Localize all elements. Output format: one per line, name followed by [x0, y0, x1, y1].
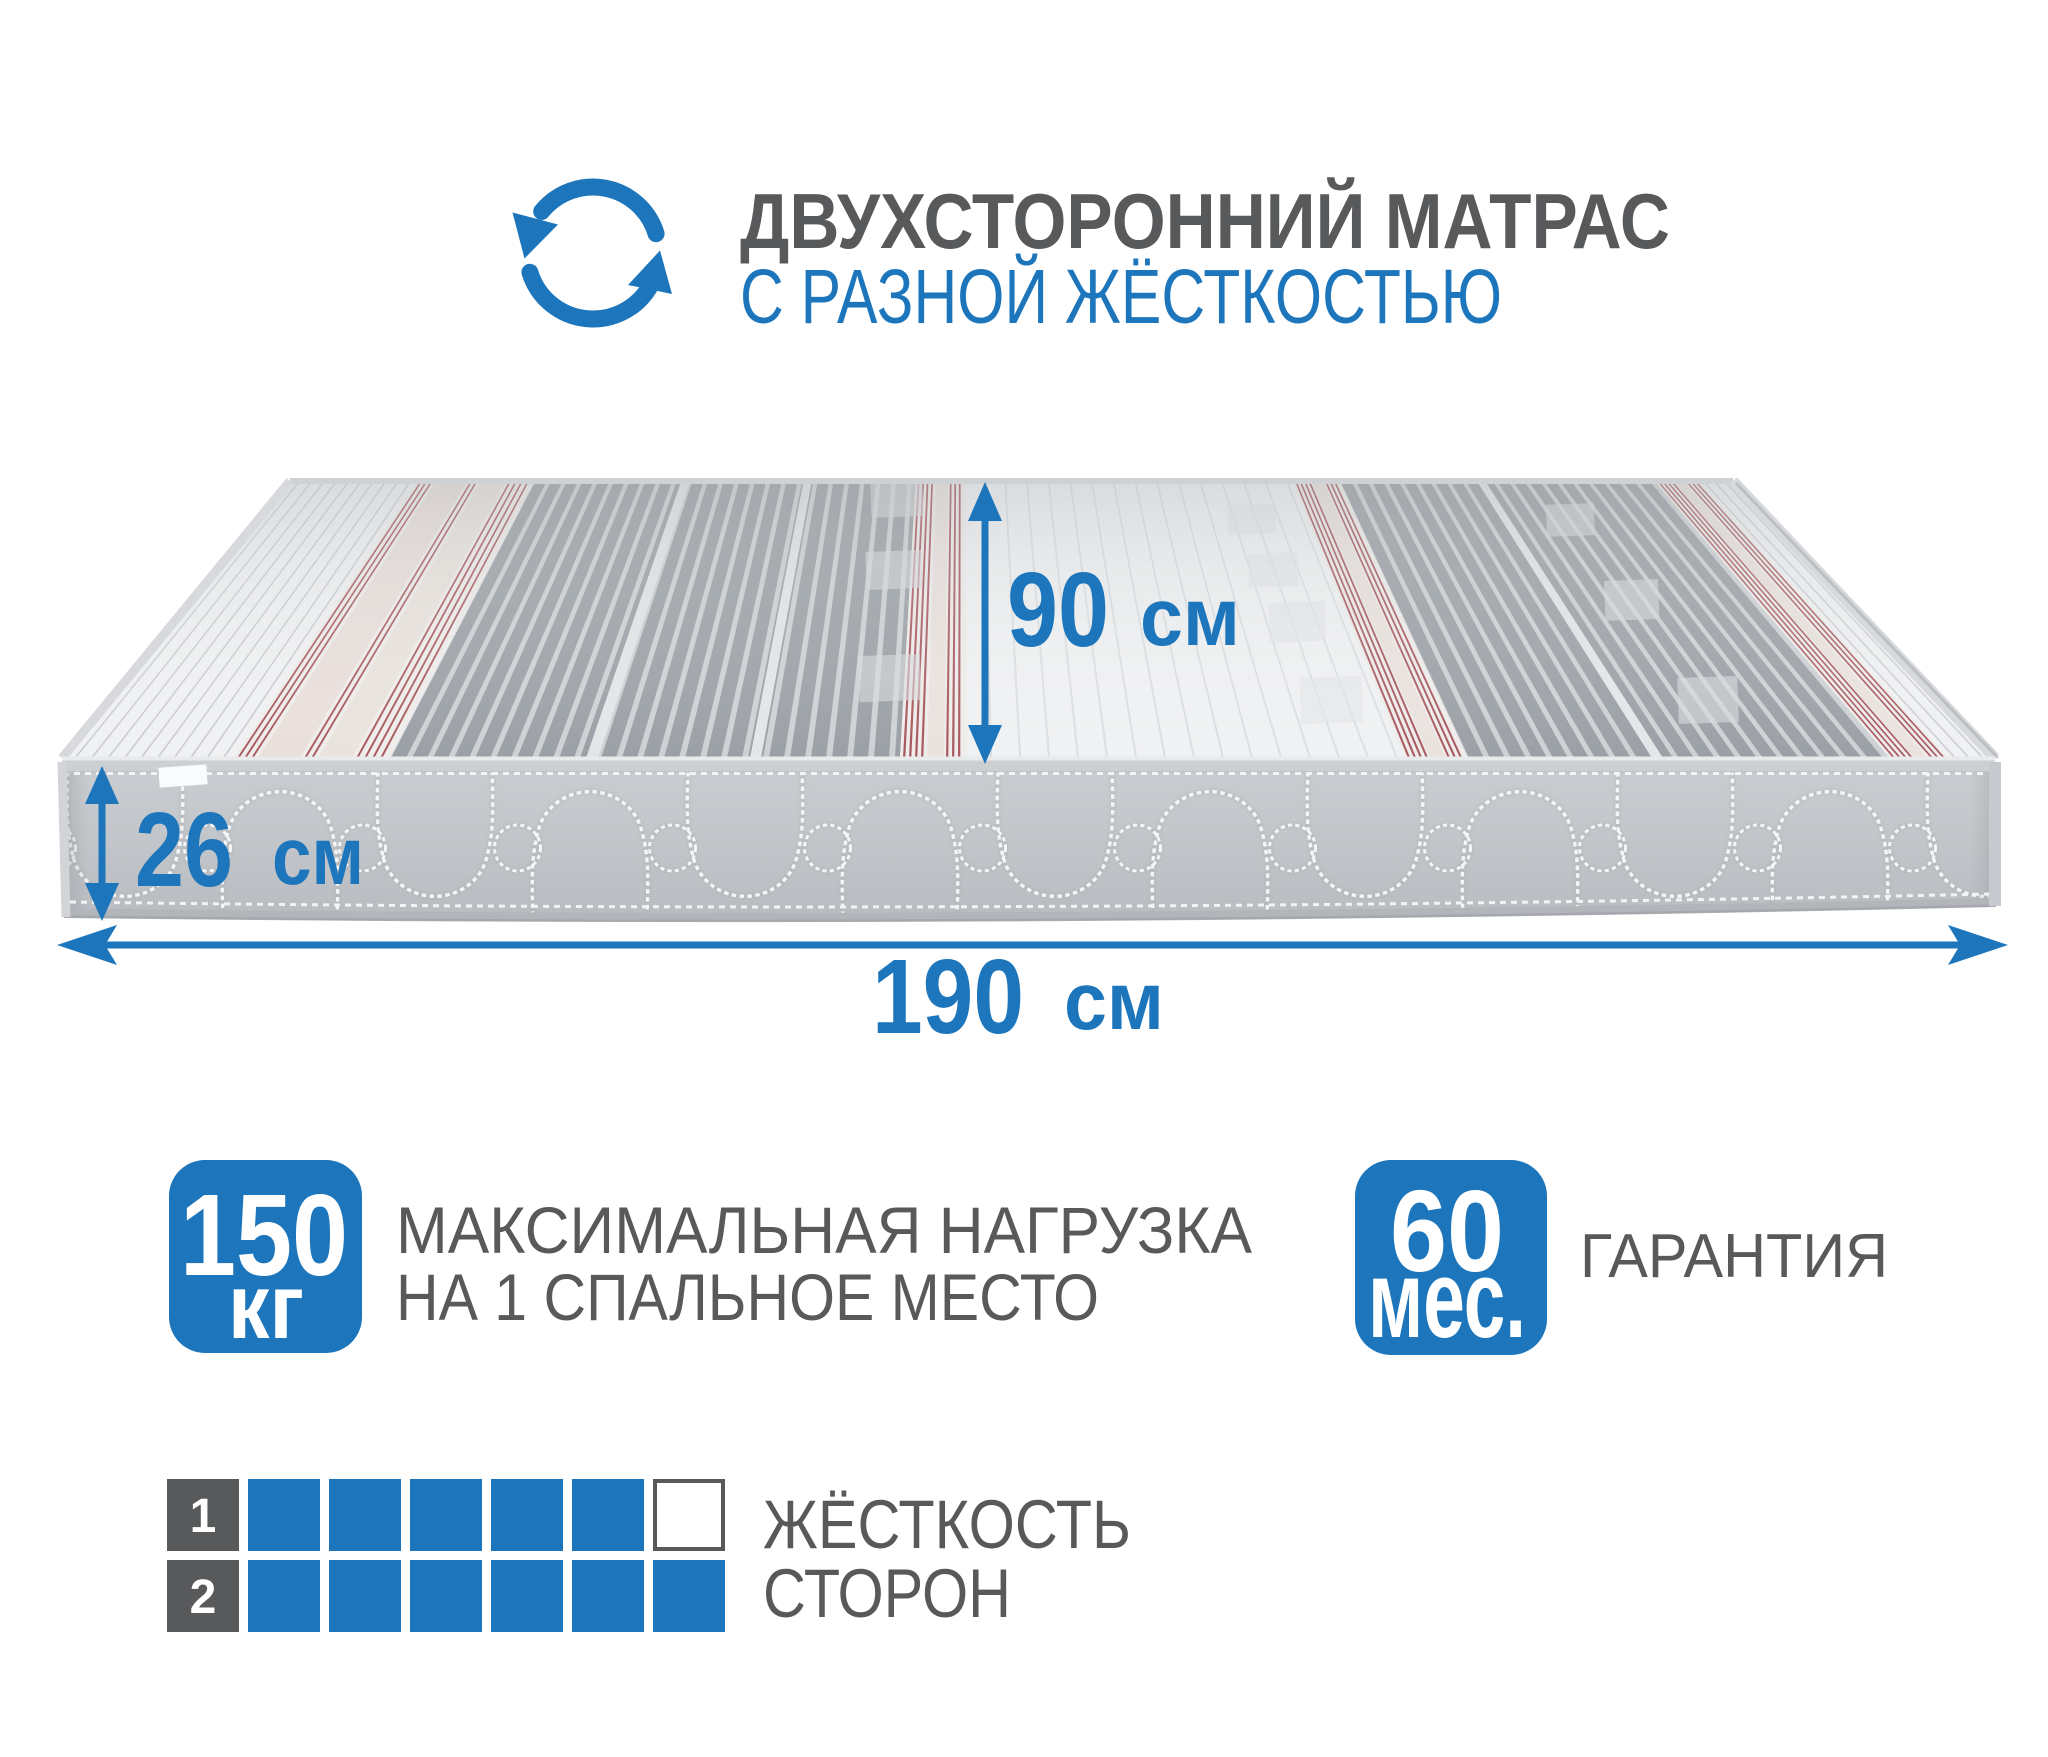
svg-text:кг: кг	[228, 1256, 304, 1358]
svg-text:ГАРАНТИЯ: ГАРАНТИЯ	[1580, 1222, 1888, 1291]
svg-text:ДВУХСТОРОННИЙ МАТРАС: ДВУХСТОРОННИЙ МАТРАС	[740, 177, 1670, 265]
svg-text:ЖЁСТКОСТЬ: ЖЁСТКОСТЬ	[763, 1486, 1131, 1563]
svg-text:см: см	[1064, 956, 1164, 1047]
svg-text:26: 26	[135, 791, 233, 909]
svg-text:СТОРОН: СТОРОН	[763, 1555, 1011, 1632]
svg-text:мес.: мес.	[1368, 1238, 1526, 1361]
svg-text:С РАЗНОЙ ЖЁСТКОСТЬЮ: С РАЗНОЙ ЖЁСТКОСТЬЮ	[740, 253, 1502, 340]
svg-text:МАКСИМАЛЬНАЯ НАГРУЗКА: МАКСИМАЛЬНАЯ НАГРУЗКА	[396, 1193, 1252, 1267]
svg-text:см: см	[272, 811, 364, 902]
svg-text:90: 90	[1007, 551, 1109, 669]
svg-text:2: 2	[190, 1571, 217, 1624]
svg-text:190: 190	[872, 938, 1024, 1056]
svg-text:1: 1	[190, 1490, 217, 1543]
svg-text:НА 1 СПАЛЬНОЕ МЕСТО: НА 1 СПАЛЬНОЕ МЕСТО	[396, 1260, 1099, 1334]
svg-text:см: см	[1140, 572, 1240, 663]
